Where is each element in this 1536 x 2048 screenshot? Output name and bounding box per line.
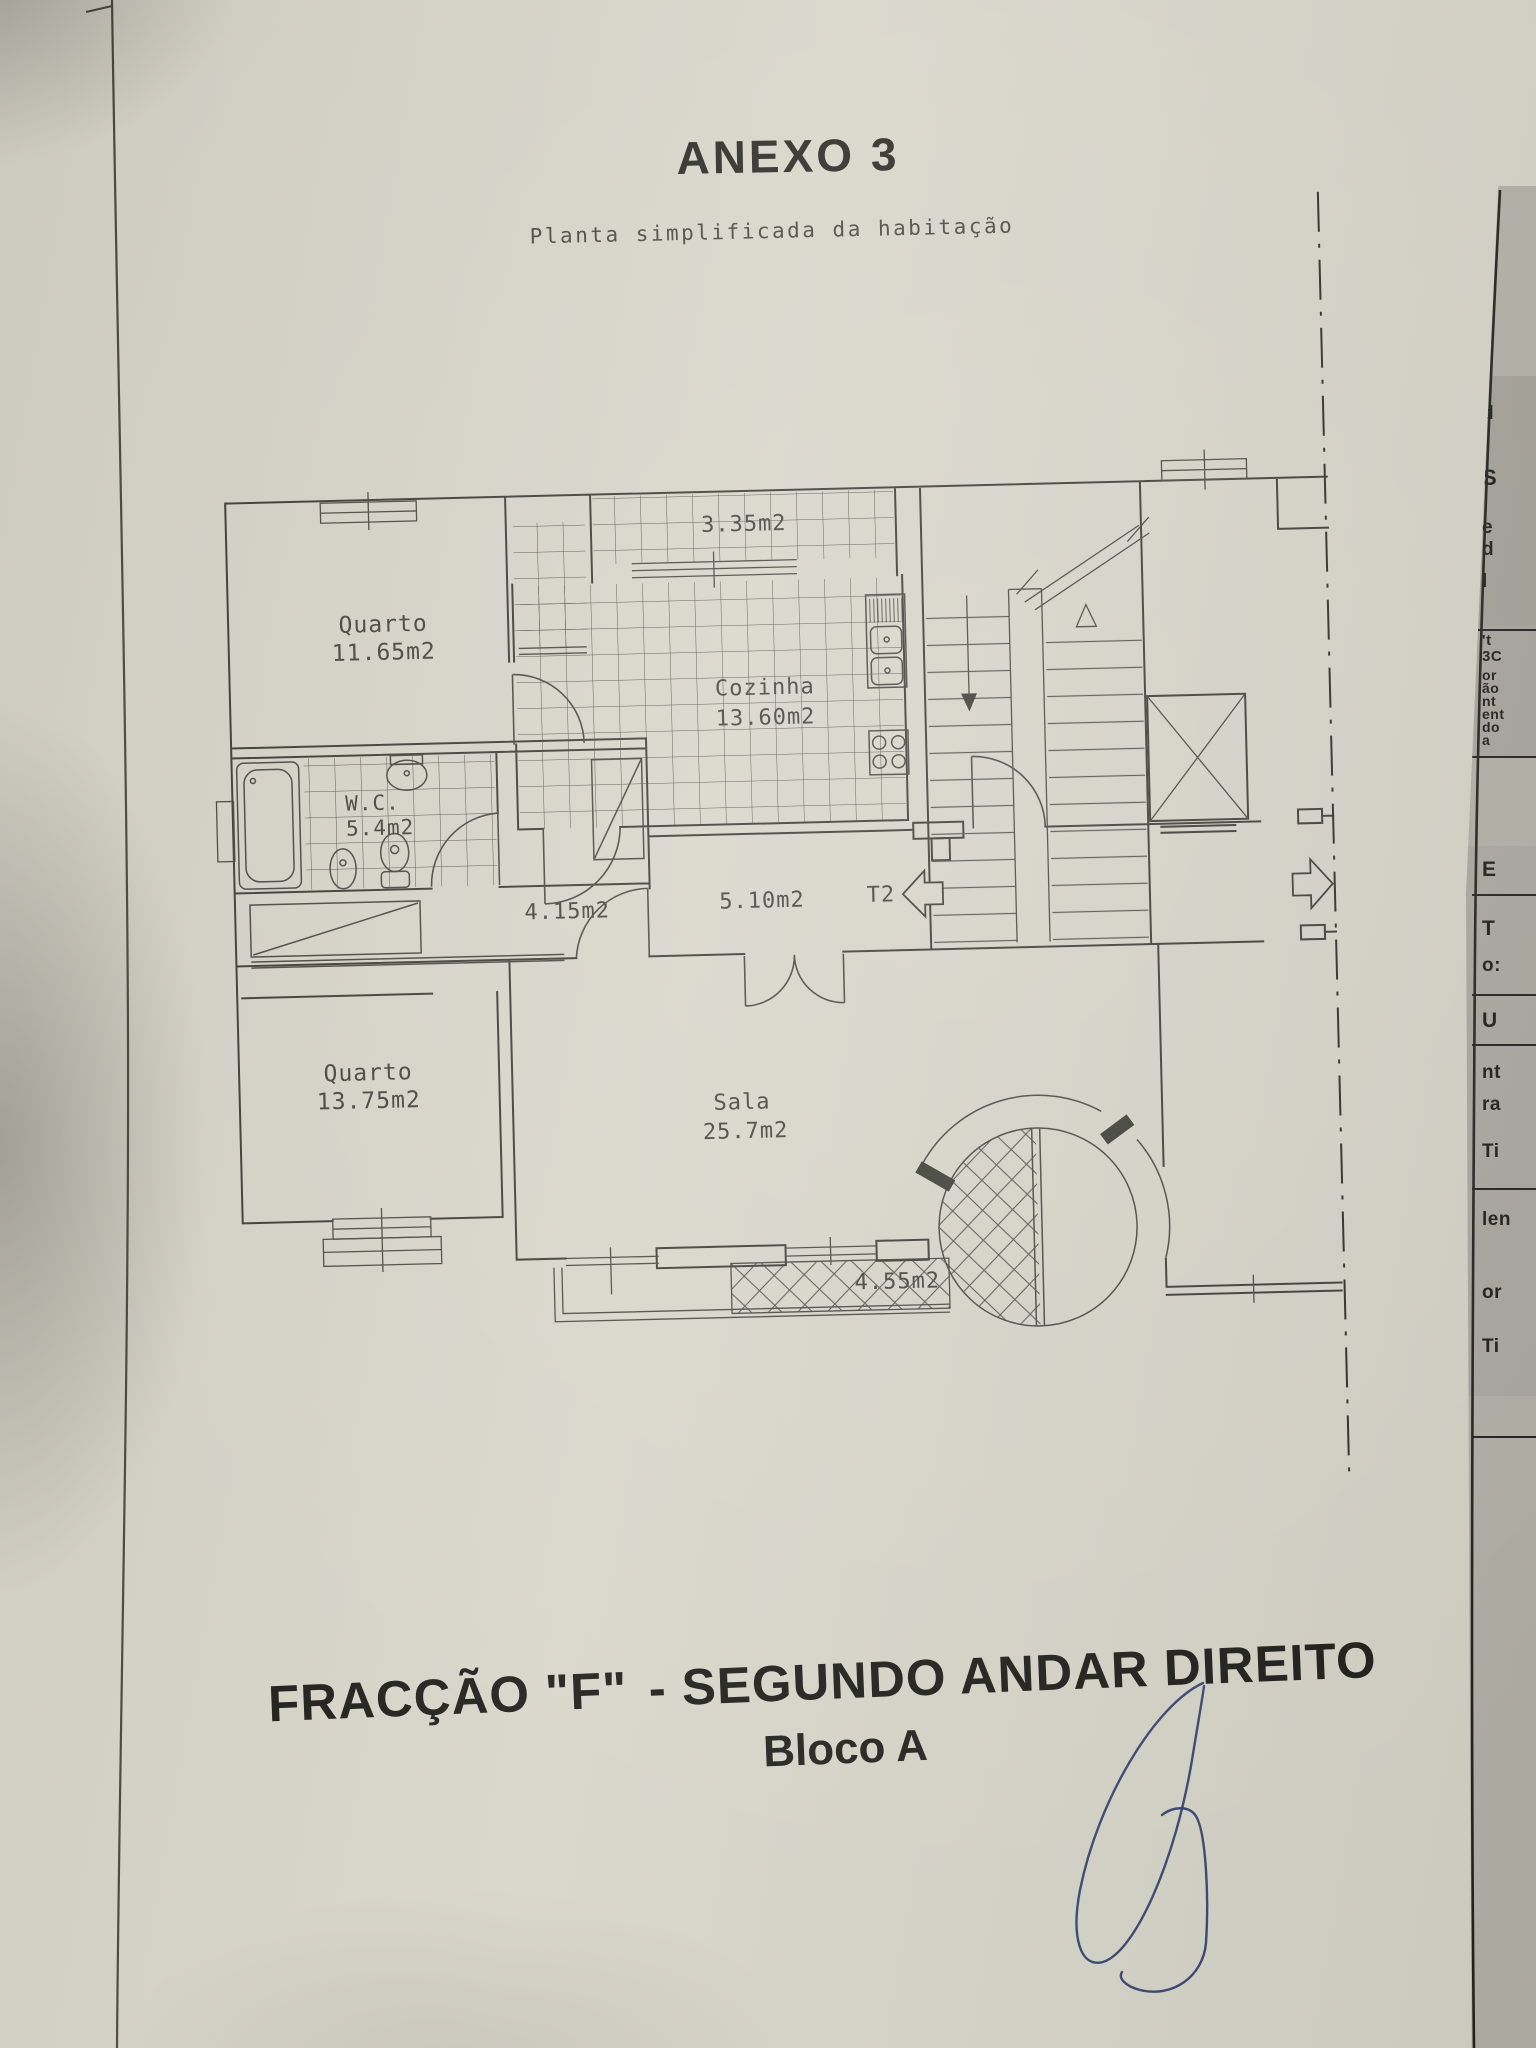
floor-plan: Quarto 11.65m2 3.35m2 Cozinha 13.60m2 W.…	[202, 192, 1351, 1504]
wall-notch	[1301, 925, 1325, 940]
room-label-cozinha-name: Cozinha	[715, 674, 815, 701]
room-label-cozinha-area: 13.60m2	[715, 704, 815, 731]
sheet-edge	[1472, 190, 1500, 2048]
svg-text:FRACÇÃO "F" - SEGUNDO ANDAR D: FRACÇÃO "F" - SEGUNDO ANDAR DIREITO	[267, 1630, 1378, 1732]
scanned-document-photo: d S e d l 't 3C or ão nt ent do a E T o:…	[0, 0, 1536, 2048]
label-varanda-top: 3.35m2	[701, 511, 787, 538]
room-label-quarto2-area: 13.75m2	[317, 1087, 422, 1116]
caption-block: Bloco A	[762, 1721, 928, 1777]
wall-pier	[656, 1245, 785, 1268]
room-label-wc-area: 5.4m2	[346, 815, 415, 841]
room-label-quarto2-name: Quarto	[323, 1059, 413, 1087]
balcony-pier	[919, 1166, 952, 1187]
signature	[1077, 1683, 1208, 1992]
room-label-quarto1-name: Quarto	[338, 611, 428, 639]
round-balcony-hatch	[937, 1128, 1041, 1328]
label-corredor-area: 4.15m2	[524, 898, 610, 925]
balcony-pier	[1103, 1120, 1130, 1140]
caption-floor: - SEGUNDO ANDAR DIREITO	[632, 1631, 1377, 1718]
entry-arrow-right	[1292, 859, 1333, 909]
label-varanda-sala: 4.55m2	[854, 1268, 940, 1295]
label-hall-area: 5.10m2	[719, 888, 805, 915]
wall-pier	[876, 1240, 928, 1261]
label-tipologia: T2	[866, 882, 895, 908]
document-content: ANEXO 3 Planta simplificada da habitação	[0, 0, 1536, 2048]
caption: FRACÇÃO "F" - SEGUNDO ANDAR DIREITO Bloc…	[267, 1630, 1380, 1796]
stair-treads	[1045, 621, 1149, 941]
kitchen-tiles	[514, 577, 906, 829]
stairwell	[924, 517, 1159, 944]
room-label-sala-area: 25.7m2	[703, 1118, 789, 1145]
page-title: ANEXO 3	[676, 128, 900, 184]
room-label-quarto1-area: 11.65m2	[332, 638, 437, 667]
room-label-wc-name: W.C.	[345, 790, 400, 815]
stair-break-marks	[1015, 517, 1151, 610]
room-label-sala-name: Sala	[713, 1089, 771, 1115]
elevator-shaft	[1147, 694, 1248, 821]
wall-notch	[1298, 809, 1322, 824]
sheet-frame-line	[112, 0, 128, 2048]
caption-fraction: FRACÇÃO "F"	[267, 1660, 629, 1732]
page-subtitle: Planta simplificada da habitação	[529, 214, 1014, 249]
header: ANEXO 3 Planta simplificada da habitação	[529, 128, 1014, 248]
sheet-frame-tick	[86, 6, 112, 12]
